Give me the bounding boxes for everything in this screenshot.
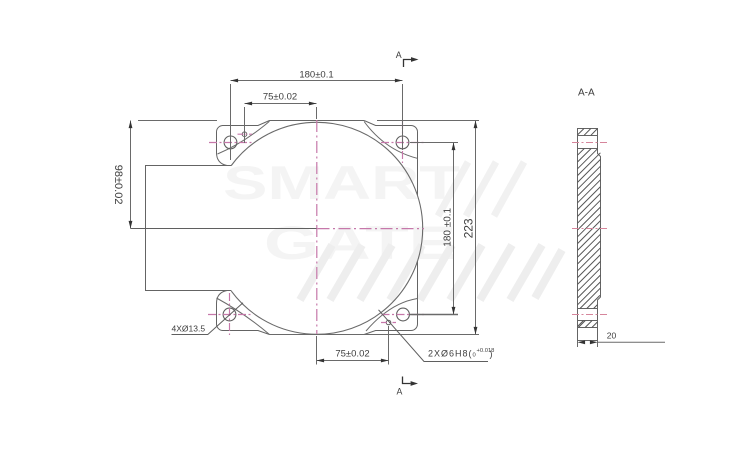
svg-text:180±0.1: 180±0.1 (299, 70, 333, 81)
svg-text:4XØ13.5: 4XØ13.5 (172, 324, 206, 334)
svg-text:2XØ6H8(: 2XØ6H8( (428, 348, 473, 358)
svg-text:A-A: A-A (578, 88, 595, 99)
svg-text:SMART: SMART (223, 156, 460, 209)
svg-text:223: 223 (462, 218, 476, 238)
svg-text:GATE: GATE (264, 216, 456, 269)
svg-text:20: 20 (607, 331, 617, 341)
svg-text:): ) (490, 349, 493, 359)
svg-text:A: A (396, 50, 402, 60)
svg-text:180 ±0.1: 180 ±0.1 (443, 207, 454, 246)
svg-text:0: 0 (473, 353, 476, 359)
svg-text:A: A (397, 386, 403, 396)
svg-text:98±0.02: 98±0.02 (112, 165, 124, 205)
svg-text:75±0.02: 75±0.02 (335, 349, 369, 360)
svg-text:75±0.02: 75±0.02 (263, 92, 297, 103)
